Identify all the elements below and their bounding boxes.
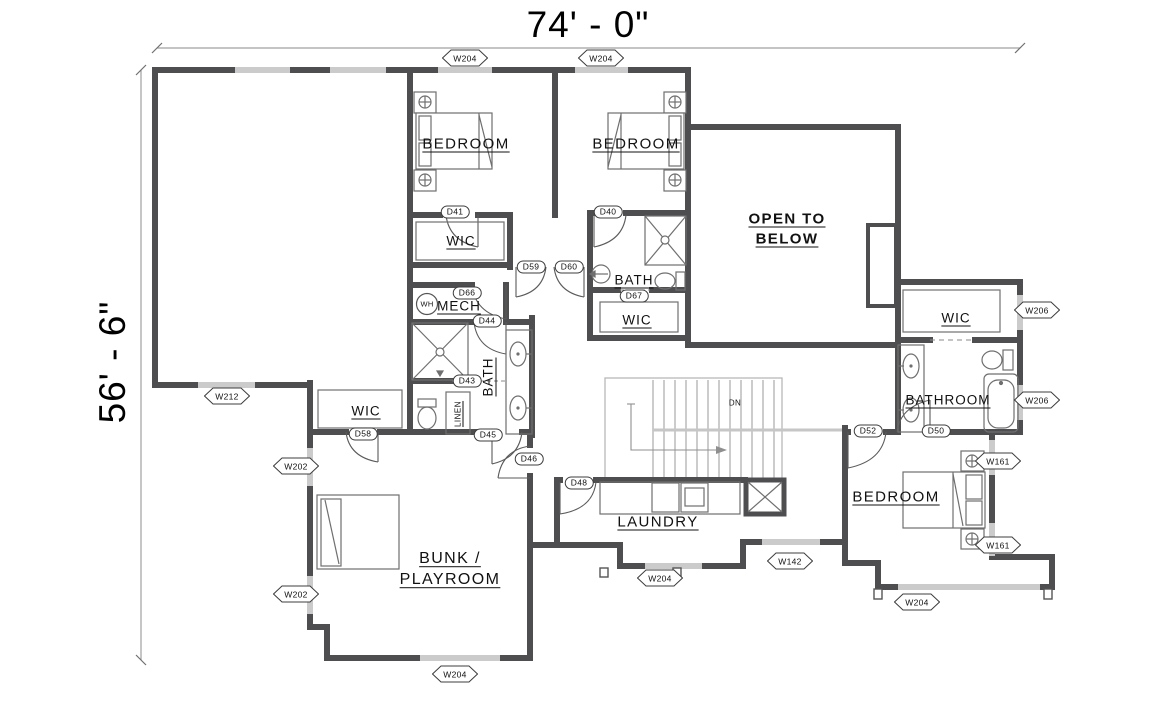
window-tag-w212: W212 xyxy=(204,388,250,405)
floor-plan-drawing xyxy=(0,0,1170,704)
door-tag-d46: D46 xyxy=(515,453,544,466)
room-label-bathroom-right: BATHROOM xyxy=(906,393,991,408)
room-label-mech: MECH xyxy=(437,299,481,314)
room-label-wic-left: WIC xyxy=(351,404,380,419)
door-tag-d50: D50 xyxy=(922,425,951,438)
staircase xyxy=(605,378,845,480)
window-tag-w204-laundry: W204 xyxy=(637,570,683,587)
water-heater-label: WH xyxy=(420,300,433,309)
room-label-wic-top: WIC xyxy=(446,234,475,249)
overall-height-dimension: 56' - 6" xyxy=(92,301,134,424)
dimension-lines xyxy=(136,43,1025,665)
window-tag-w204-top-right: W204 xyxy=(578,50,624,67)
door-tag-d59: D59 xyxy=(517,261,546,274)
door-tag-d67: D67 xyxy=(620,290,649,303)
window-tag-w204-bay: W204 xyxy=(894,594,940,611)
door-tag-d45: D45 xyxy=(474,429,503,442)
window-tag-w204-bunk: W204 xyxy=(432,666,478,683)
window-tag-w142: W142 xyxy=(767,553,813,570)
stair-arrow xyxy=(716,446,727,454)
door-tag-d52: D52 xyxy=(854,425,883,438)
room-label-bedroom-bottom-right: BEDROOM xyxy=(852,489,939,506)
room-label-laundry: LAUNDRY xyxy=(617,514,698,531)
room-label-linen: LINEN xyxy=(454,401,463,427)
door-tag-d60: D60 xyxy=(555,261,584,274)
door-tag-d43: D43 xyxy=(453,375,482,388)
room-label-bath-upper: BATH xyxy=(614,273,653,288)
door-tag-d44: D44 xyxy=(473,315,502,328)
stairs-down-label: DN xyxy=(729,399,741,408)
door-tag-d58: D58 xyxy=(349,428,378,441)
window-tag-w206-lower: W206 xyxy=(1014,392,1060,409)
room-label-wic-right: WIC xyxy=(941,311,970,326)
overall-width-dimension: 74' - 0" xyxy=(527,4,650,46)
window-tag-w206-upper: W206 xyxy=(1014,302,1060,319)
window-tag-w202-lower: W202 xyxy=(273,586,319,603)
window-tag-w204-top-left: W204 xyxy=(442,50,488,67)
stair-walk-line xyxy=(631,404,716,450)
laundry-appliances xyxy=(600,482,740,514)
room-label-open-to-below: OPEN TO BELOW xyxy=(725,210,849,249)
window-tag-w202-upper: W202 xyxy=(273,458,319,475)
door-tag-d41: D41 xyxy=(441,206,470,219)
window-tag-w161-upper: W161 xyxy=(975,453,1021,470)
room-label-bath-middle: BATH xyxy=(481,357,496,396)
room-label-bunk-playroom: BUNK / PLAYROOM xyxy=(388,549,512,591)
window-tag-w161-lower: W161 xyxy=(975,537,1021,554)
door-tag-d48: D48 xyxy=(565,477,594,490)
room-label-bedroom-top-right: BEDROOM xyxy=(592,136,679,153)
floor-plan-canvas: 74' - 0" 56' - 6" BEDROOM BEDROOM OPEN T… xyxy=(0,0,1170,704)
door-tag-d40: D40 xyxy=(594,206,623,219)
door-tag-d66: D66 xyxy=(453,287,482,300)
room-label-bedroom-top-left: BEDROOM xyxy=(422,136,509,153)
room-label-wic-middle: WIC xyxy=(622,313,651,328)
chase xyxy=(868,225,896,306)
